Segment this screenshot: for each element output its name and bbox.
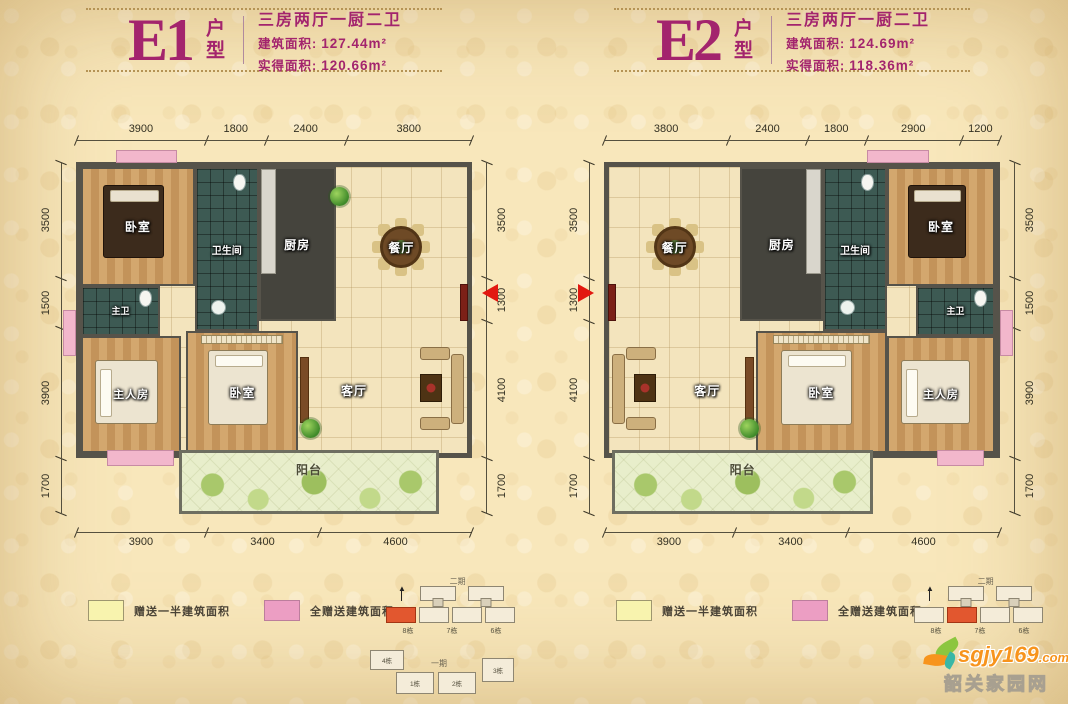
building-block xyxy=(1013,607,1043,623)
dim-label: 1500 xyxy=(1024,291,1036,315)
room-kitchen: 厨房 xyxy=(740,167,823,321)
wardrobe xyxy=(773,335,870,344)
dim-chain-top: 3800 2400 1800 2900 1200 xyxy=(604,122,1000,150)
sofa-set xyxy=(612,347,670,430)
legend-e2: 赠送一半建筑面积 全赠送建筑面积 xyxy=(616,600,922,621)
dim-label: 3500 xyxy=(568,208,580,232)
siteplan-phase1: 一期 4栋 1栋 2栋 3栋 xyxy=(356,644,522,702)
tv-cabinet xyxy=(745,357,754,422)
net-area: 实得面积:120.66m² xyxy=(258,55,402,74)
dim-label: 3900 xyxy=(76,122,206,136)
room-label: 厨房 xyxy=(769,236,795,253)
room-label: 主卫 xyxy=(112,304,130,317)
dim-label: 1800 xyxy=(206,122,266,136)
room-balcony: 阳台 xyxy=(612,450,873,514)
room-label: 厨房 xyxy=(284,236,310,253)
toilet xyxy=(233,174,246,191)
header-divider xyxy=(771,16,772,64)
room-label: 卫生间 xyxy=(840,242,870,257)
building-number: 8栋 xyxy=(403,626,414,636)
bay-window-gift xyxy=(63,310,76,356)
watermark-cn-name: 韶关家园网 xyxy=(944,670,1049,696)
dim-label: 3400 xyxy=(734,535,847,549)
watermark-site-name: sgjy169 xyxy=(958,642,1039,667)
room-label: 阳台 xyxy=(730,461,756,478)
legend-swatch-full xyxy=(264,600,300,621)
sofa-set xyxy=(406,347,464,430)
building-number: 4栋 xyxy=(382,655,392,665)
building-block xyxy=(419,607,449,623)
north-arrow-icon: ▲ xyxy=(926,584,934,593)
room-balcony: 阳台 xyxy=(179,450,439,514)
built-area-value: 124.69m² xyxy=(849,36,915,51)
dim-label: 1200 xyxy=(961,122,1000,136)
building-number: 1栋 xyxy=(410,678,420,688)
room-living: 客厅 xyxy=(298,327,467,453)
room-bedroom-top: 卧室 xyxy=(81,167,195,286)
dim-label: 4600 xyxy=(319,535,472,549)
dim-label: 3900 xyxy=(1024,381,1036,405)
bay-window-gift xyxy=(107,450,174,466)
watermark-site-tld: .com xyxy=(1039,650,1068,665)
room-living: 客厅 xyxy=(609,327,756,453)
building-block: 3栋 xyxy=(482,658,514,682)
plant xyxy=(740,419,759,438)
legend-swatch-half xyxy=(88,600,124,621)
dim-label: 4100 xyxy=(496,377,508,401)
unit-info: 三房两厅一厨二卫 建筑面积:124.69m² 实得面积:118.36m² xyxy=(786,6,930,74)
built-area-label: 建筑面积: xyxy=(786,37,845,51)
room-master-bedroom: 主人房 xyxy=(887,336,995,453)
building-number: 8栋 xyxy=(931,626,942,636)
building-number: 7栋 xyxy=(975,626,986,636)
room-master-bath: 主卫 xyxy=(81,286,160,336)
room-bedroom-mid: 卧室 xyxy=(186,331,298,453)
building-block xyxy=(420,586,456,601)
basin xyxy=(211,300,226,315)
unit-spec: 三房两厅一厨二卫 xyxy=(258,6,402,30)
building-block xyxy=(996,586,1032,601)
floorplan-body-e2: 餐厅 厨房 卫生间 卧室 主卫 xyxy=(604,162,1000,458)
plant xyxy=(330,187,349,206)
tv-cabinet xyxy=(300,357,309,422)
dim-label: 4600 xyxy=(847,535,1000,549)
dim-label: 4100 xyxy=(568,377,580,401)
room-label: 主人房 xyxy=(923,386,959,402)
building-block xyxy=(914,607,944,623)
dim-chain-bottom: 3900 3400 4600 xyxy=(604,524,1000,552)
floorplan-e2: 餐厅 厨房 卫生间 卧室 主卫 xyxy=(604,162,1000,514)
header-divider xyxy=(243,16,244,64)
plant xyxy=(301,419,320,438)
dim-label: 2400 xyxy=(266,122,346,136)
dim-label: 1500 xyxy=(40,291,52,315)
building-block-highlighted xyxy=(947,607,977,623)
bay-window-gift xyxy=(1000,310,1013,356)
legend-e1: 赠送一半建筑面积 全赠送建筑面积 xyxy=(88,600,394,621)
legend-label-half: 赠送一半建筑面积 xyxy=(134,603,230,619)
built-area-label: 建筑面积: xyxy=(258,37,317,51)
entrance-arrow-icon xyxy=(482,284,498,302)
dim-label: 3500 xyxy=(40,208,52,232)
net-area: 实得面积:118.36m² xyxy=(786,55,930,74)
toilet xyxy=(974,290,987,307)
dim-label: 1700 xyxy=(1024,474,1036,498)
building-block xyxy=(452,607,482,623)
unit-info: 三房两厅一厨二卫 建筑面积:127.44m² 实得面积:120.66m² xyxy=(258,6,402,74)
room-label: 卧室 xyxy=(928,218,954,235)
basin xyxy=(840,300,855,315)
legend-swatch-half xyxy=(616,600,652,621)
toilet xyxy=(139,290,152,307)
dim-label: 3800 xyxy=(346,122,472,136)
dim-label: 1700 xyxy=(568,474,580,498)
dim-label: 3900 xyxy=(76,535,206,549)
building-number: 6栋 xyxy=(491,626,502,636)
room-dining: 餐厅 xyxy=(336,167,467,327)
net-area-value: 120.66m² xyxy=(321,58,387,73)
dim-chain-top: 3900 1800 2400 3800 xyxy=(76,122,472,150)
room-dining: 餐厅 xyxy=(609,167,740,327)
legend-swatch-full xyxy=(792,600,828,621)
watermark: sgjy169.com 韶关家园网 xyxy=(926,636,1066,702)
room-label: 卫生间 xyxy=(212,242,242,257)
building-block: 4栋 xyxy=(370,650,404,670)
dim-chain-right: 3500 1300 4100 1700 xyxy=(480,162,510,514)
entrance-arrow-icon xyxy=(578,284,594,302)
building-block xyxy=(980,607,1010,623)
room-label: 客厅 xyxy=(341,382,367,399)
unit-code: E1 xyxy=(128,11,192,69)
north-arrow-icon: ▲ xyxy=(398,584,406,593)
room-label: 餐厅 xyxy=(662,239,688,256)
room-kitchen: 厨房 xyxy=(259,167,336,321)
unit-header-e2: E2 户型 三房两厅一厨二卫 建筑面积:124.69m² 实得面积:118.36… xyxy=(614,8,970,72)
room-bathroom: 卫生间 xyxy=(823,167,887,331)
room-label: 卧室 xyxy=(808,384,834,401)
room-label: 阳台 xyxy=(296,461,322,478)
unit-header-e1: E1 户型 三房两厅一厨二卫 建筑面积:127.44m² 实得面积:120.66… xyxy=(86,8,442,72)
building-block: 1栋 xyxy=(396,672,434,694)
dim-label: 1700 xyxy=(40,474,52,498)
building-block-highlighted xyxy=(386,607,416,623)
dim-chain-left: 3500 1300 4100 1700 xyxy=(566,162,596,514)
building-number: 6栋 xyxy=(1019,626,1030,636)
watermark-site: sgjy169.com xyxy=(958,642,1068,668)
built-area: 建筑面积:127.44m² xyxy=(258,33,402,52)
net-area-label: 实得面积: xyxy=(786,59,845,73)
coffee-table xyxy=(420,374,442,402)
room-bedroom-top: 卧室 xyxy=(887,167,995,286)
entry-door xyxy=(608,284,616,321)
dim-label: 2900 xyxy=(866,122,961,136)
room-label: 卧室 xyxy=(125,218,151,235)
room-label: 餐厅 xyxy=(388,239,414,256)
net-area-value: 118.36m² xyxy=(849,58,914,73)
building-block xyxy=(468,586,504,601)
dim-label: 3900 xyxy=(604,535,734,549)
room-master-bedroom: 主人房 xyxy=(81,336,181,453)
unit-type-label: 户型 xyxy=(200,18,227,62)
dim-label: 1700 xyxy=(496,474,508,498)
entry-door xyxy=(460,284,468,321)
building-block: 2栋 xyxy=(438,672,476,694)
dim-label: 3800 xyxy=(604,122,728,136)
unit-panel-e2: E2 户型 三房两厅一厨二卫 建筑面积:124.69m² 实得面积:118.36… xyxy=(552,0,1052,660)
toilet xyxy=(861,174,874,191)
built-area-value: 127.44m² xyxy=(321,36,387,51)
unit-spec: 三房两厅一厨二卫 xyxy=(786,6,930,30)
dim-chain-bottom: 3900 3400 4600 xyxy=(76,524,472,552)
dim-label: 2400 xyxy=(728,122,806,136)
room-label: 客厅 xyxy=(694,382,720,399)
bay-window-gift xyxy=(116,150,177,163)
wardrobe xyxy=(201,335,283,344)
siteplan-key-e2: 二期 ▲ 8栋 7栋 6栋 xyxy=(910,576,1050,638)
building-number: 7栋 xyxy=(447,626,458,636)
building-number: 2栋 xyxy=(452,678,462,688)
phase-label: 一期 xyxy=(431,658,447,669)
dim-label: 3400 xyxy=(206,535,319,549)
unit-code: E2 xyxy=(656,11,720,69)
room-bathroom: 卫生间 xyxy=(195,167,259,331)
net-area-label: 实得面积: xyxy=(258,59,317,73)
building-block xyxy=(948,586,984,601)
room-label: 卧室 xyxy=(229,384,255,401)
room-label: 主卫 xyxy=(946,304,964,317)
siteplan-key-e1: 二期 ▲ 8栋 7栋 6栋 xyxy=(382,576,522,638)
bay-window-gift xyxy=(867,150,928,163)
dim-label: 3500 xyxy=(1024,208,1036,232)
floorplan-e1: 卧室 卫生间 厨房 餐厅 主卫 xyxy=(76,162,472,514)
dim-label: 3500 xyxy=(496,208,508,232)
room-bedroom-mid: 卧室 xyxy=(756,331,887,453)
unit-type-label: 户型 xyxy=(728,18,755,62)
dim-label: 1800 xyxy=(807,122,866,136)
coffee-table xyxy=(634,374,656,402)
bay-window-gift xyxy=(937,450,985,466)
legend-label-half: 赠送一半建筑面积 xyxy=(662,603,758,619)
built-area: 建筑面积:124.69m² xyxy=(786,33,930,52)
building-block xyxy=(485,607,515,623)
floorplan-poster: E1 户型 三房两厅一厨二卫 建筑面积:127.44m² 实得面积:120.66… xyxy=(0,0,1068,704)
building-number: 3栋 xyxy=(493,665,503,675)
floorplan-body-e1: 卧室 卫生间 厨房 餐厅 主卫 xyxy=(76,162,472,458)
room-master-bath: 主卫 xyxy=(916,286,995,336)
room-label: 主人房 xyxy=(113,386,149,402)
unit-panel-e1: E1 户型 三房两厅一厨二卫 建筑面积:127.44m² 实得面积:120.66… xyxy=(24,0,524,660)
dim-label: 3900 xyxy=(40,381,52,405)
